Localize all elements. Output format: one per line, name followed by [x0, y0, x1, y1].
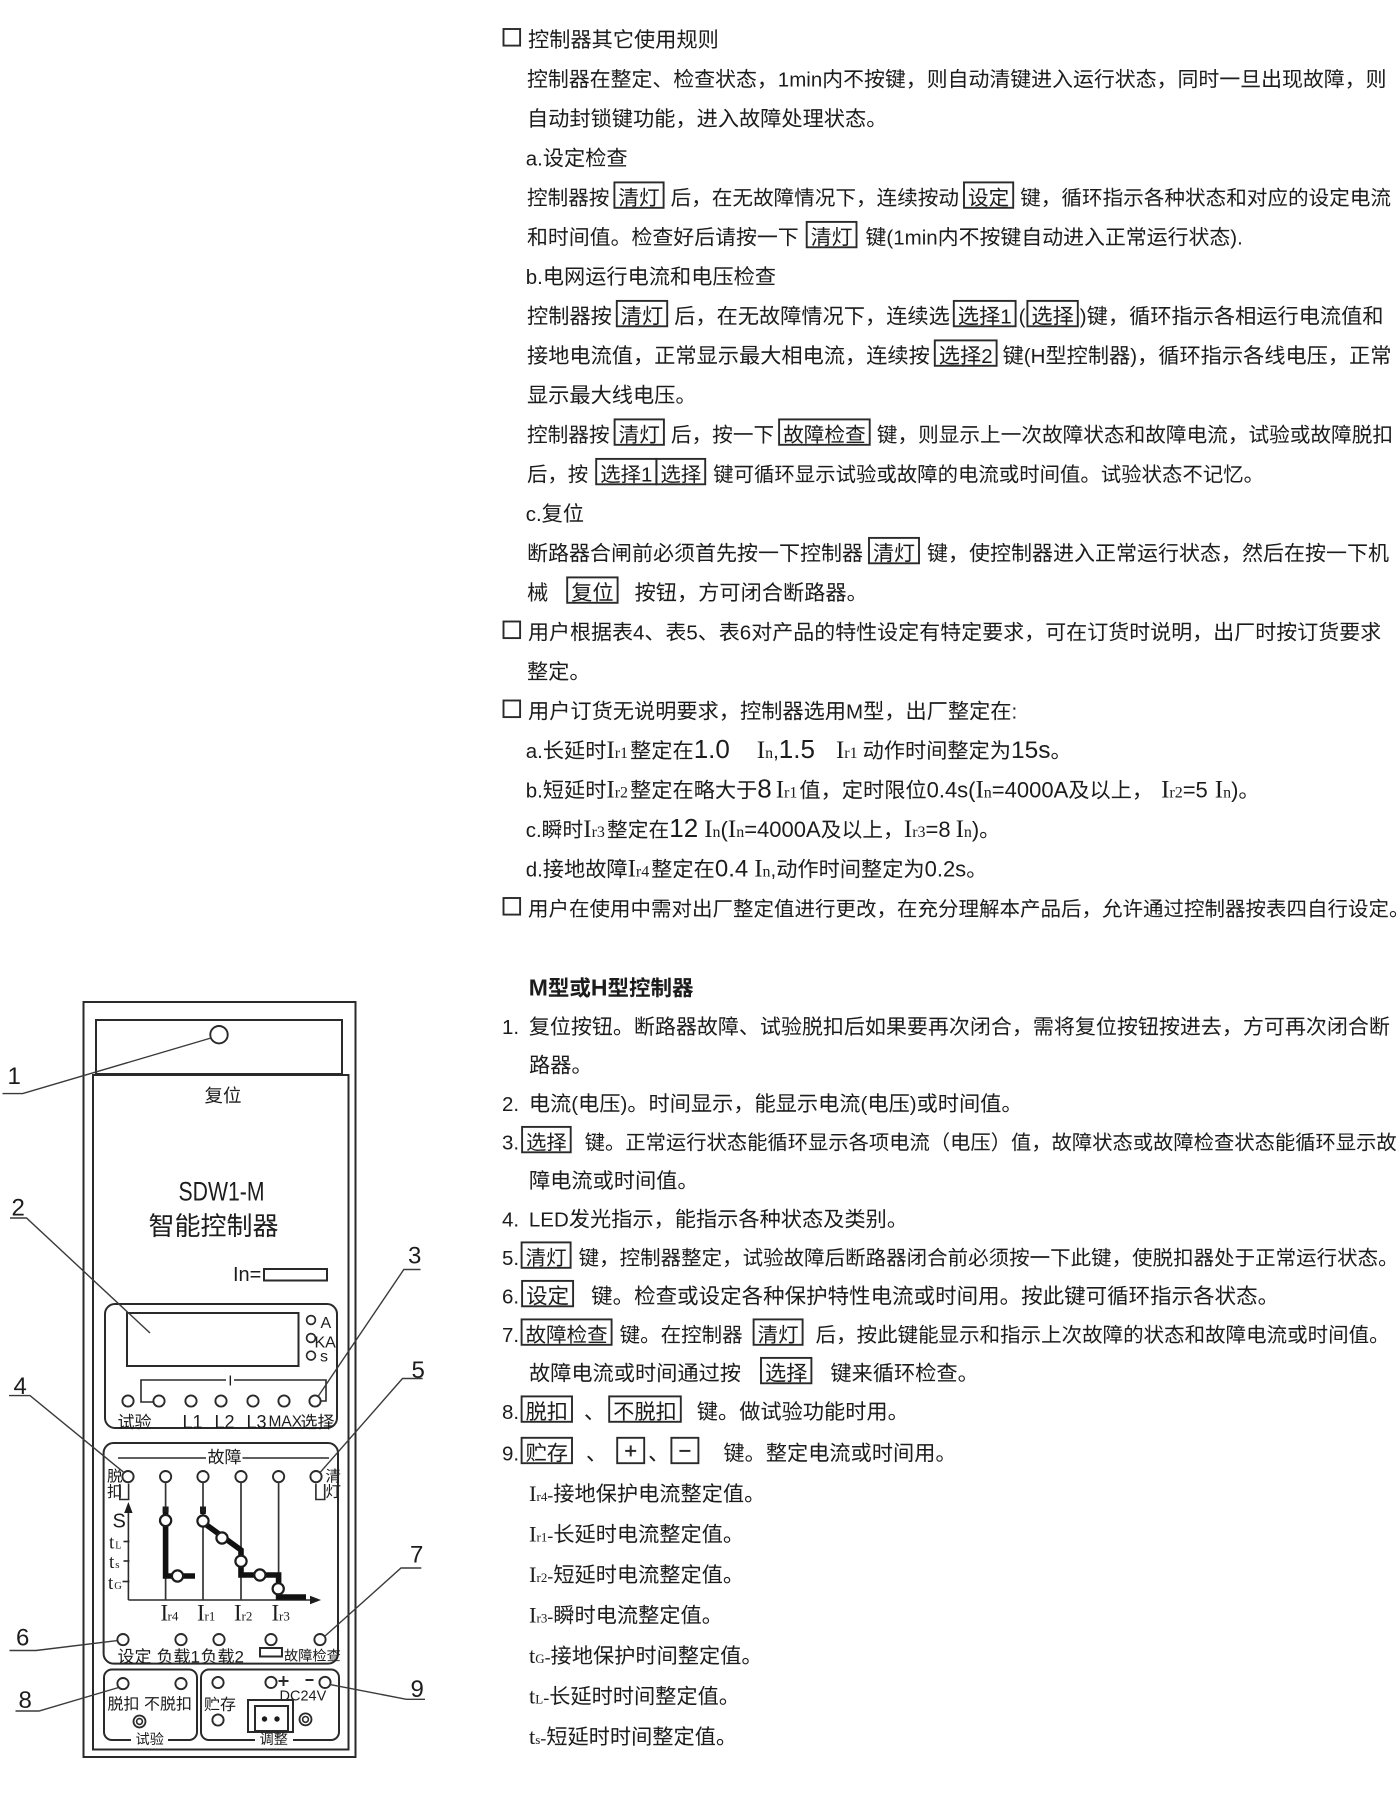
svg-text:6.: 6. [502, 1286, 519, 1309]
svg-text:a.: a. [526, 740, 543, 763]
svg-text:5.: 5. [502, 1247, 519, 1270]
svg-text:I: I [606, 777, 614, 804]
svg-text:(: ( [861, 1093, 868, 1116]
svg-text:r1: r1 [844, 745, 857, 762]
svg-text:(: ( [1019, 306, 1026, 329]
svg-text:7: 7 [410, 1541, 423, 1568]
svg-text:r4: r4 [636, 864, 649, 881]
svg-text:): ) [910, 1093, 917, 1116]
svg-text:c.: c. [526, 819, 542, 842]
svg-text:5: 5 [686, 622, 697, 645]
svg-text:1: 1 [191, 1648, 200, 1667]
svg-text:A: A [321, 1315, 332, 1332]
svg-text:n: n [765, 745, 773, 762]
svg-text:1: 1 [641, 464, 652, 487]
svg-text:I: I [606, 737, 614, 764]
svg-text:-: - [547, 1526, 553, 1546]
svg-text:LED: LED [529, 1209, 569, 1232]
svg-text:n: n [736, 824, 744, 841]
svg-text:t: t [108, 1573, 114, 1594]
svg-text:0.4: 0.4 [715, 856, 748, 883]
svg-text:=4000A: =4000A [744, 817, 821, 842]
svg-text:I: I [836, 737, 844, 764]
svg-text:H: H [591, 975, 608, 1001]
svg-text:I: I [529, 1562, 537, 1587]
svg-text:1min: 1min [778, 69, 822, 92]
svg-text:r1: r1 [615, 745, 628, 762]
svg-text:,: , [771, 859, 777, 882]
svg-text:In=: In= [233, 1264, 261, 1286]
svg-text:d.: d. [526, 859, 543, 882]
svg-text:a.: a. [526, 148, 543, 171]
svg-text:8: 8 [19, 1687, 32, 1714]
svg-text:1.0: 1.0 [694, 734, 730, 764]
svg-text:L3: L3 [247, 1412, 267, 1432]
svg-text:(H: (H [1024, 345, 1046, 368]
svg-text:I: I [728, 816, 736, 843]
svg-text:r3: r3 [592, 824, 605, 841]
svg-text:r4: r4 [168, 1609, 179, 1624]
svg-text:r2: r2 [1169, 785, 1182, 802]
svg-text:4.: 4. [502, 1209, 519, 1232]
svg-text:2.: 2. [502, 1093, 519, 1116]
svg-text:n: n [1223, 785, 1231, 802]
svg-text:5: 5 [412, 1357, 425, 1384]
svg-text:3: 3 [408, 1243, 421, 1270]
svg-text:S: S [113, 1511, 126, 1533]
svg-text:1.5: 1.5 [779, 734, 815, 764]
svg-text:b.: b. [526, 780, 543, 803]
svg-text:): ) [1080, 306, 1087, 329]
svg-text:I: I [529, 1522, 537, 1547]
svg-text:0.2s: 0.2s [925, 857, 967, 882]
svg-text:6: 6 [16, 1625, 29, 1652]
svg-text:15s: 15s [1011, 737, 1051, 764]
svg-text:I: I [976, 777, 984, 804]
svg-text:r2: r2 [242, 1609, 253, 1624]
svg-text:I: I [757, 737, 765, 764]
svg-text:8.: 8. [502, 1401, 519, 1424]
svg-text:t: t [109, 1552, 115, 1573]
svg-text:G: G [114, 1581, 122, 1592]
svg-text:L: L [535, 1692, 543, 1707]
svg-text:r2: r2 [537, 1570, 548, 1585]
svg-text:n: n [984, 785, 992, 802]
svg-text:t: t [109, 1533, 115, 1554]
svg-text:r1: r1 [784, 785, 797, 802]
svg-text:r1: r1 [537, 1530, 548, 1545]
svg-text:-: - [543, 1688, 549, 1708]
svg-text:I: I [1161, 777, 1169, 804]
svg-text:(: ( [571, 1093, 578, 1116]
svg-text:I: I [754, 856, 762, 883]
svg-text:I: I [529, 1481, 537, 1506]
svg-text:SDW1-M: SDW1-M [179, 1177, 265, 1207]
svg-text:n: n [763, 864, 771, 881]
svg-text:6: 6 [740, 622, 751, 645]
svg-text:r3: r3 [279, 1609, 290, 1624]
svg-text:b.: b. [526, 266, 543, 289]
svg-text:=4000A: =4000A [992, 778, 1069, 803]
svg-text:9.: 9. [502, 1442, 519, 1465]
svg-text:MAX: MAX [269, 1414, 303, 1431]
svg-text:-: - [547, 1485, 553, 1505]
svg-text:4: 4 [633, 622, 644, 645]
svg-text:I: I [529, 1603, 537, 1628]
svg-text:I: I [628, 856, 636, 883]
svg-text:): ) [972, 817, 979, 842]
svg-text:r3: r3 [912, 824, 925, 841]
svg-text:M: M [529, 975, 548, 1001]
svg-text:8: 8 [757, 774, 771, 804]
svg-text:(1min: (1min [886, 227, 937, 250]
svg-text:L: L [115, 1541, 121, 1552]
svg-text:DC24V: DC24V [280, 1689, 327, 1705]
svg-text:I: I [583, 816, 591, 843]
svg-text:I: I [1215, 777, 1223, 804]
svg-text:).: ). [1230, 227, 1243, 250]
svg-text:2: 2 [235, 1648, 244, 1667]
svg-text:12: 12 [669, 813, 698, 843]
svg-text:): ) [1130, 345, 1137, 368]
svg-text:): ) [1231, 778, 1238, 803]
svg-text:I: I [776, 777, 784, 804]
svg-text:0.4s(: 0.4s( [927, 778, 977, 803]
svg-text:I: I [228, 1373, 232, 1390]
svg-text:=8: =8 [926, 817, 951, 842]
svg-text:L2: L2 [215, 1412, 235, 1432]
svg-text:2: 2 [981, 345, 992, 368]
svg-text:-: - [547, 1566, 553, 1586]
svg-text:-: - [547, 1607, 553, 1627]
svg-text:I: I [956, 816, 964, 843]
svg-text:G: G [535, 1651, 544, 1666]
svg-text:n: n [964, 824, 972, 841]
svg-text:-: - [545, 1647, 551, 1667]
svg-text:): ) [621, 1093, 628, 1116]
svg-text:-: - [540, 1728, 546, 1748]
svg-text:r4: r4 [537, 1489, 548, 1504]
svg-text:s: s [115, 1559, 119, 1571]
svg-text:r3: r3 [537, 1611, 548, 1626]
svg-text:L1: L1 [183, 1412, 203, 1432]
svg-text:1.: 1. [502, 1016, 519, 1039]
svg-text:1: 1 [8, 1063, 21, 1090]
svg-text:r1: r1 [205, 1609, 216, 1624]
svg-text:1: 1 [1000, 306, 1011, 329]
svg-text:I: I [704, 816, 712, 843]
svg-text:3.: 3. [502, 1132, 519, 1155]
svg-text::: : [1012, 701, 1018, 724]
svg-text:I: I [904, 816, 912, 843]
svg-text:n: n [713, 824, 721, 841]
svg-text:M: M [846, 701, 863, 724]
svg-text:s: s [320, 1349, 328, 1366]
svg-text:r2: r2 [615, 785, 628, 802]
svg-text:=5: =5 [1183, 778, 1208, 803]
svg-text:c.: c. [526, 503, 542, 526]
svg-text:7.: 7. [502, 1324, 519, 1347]
